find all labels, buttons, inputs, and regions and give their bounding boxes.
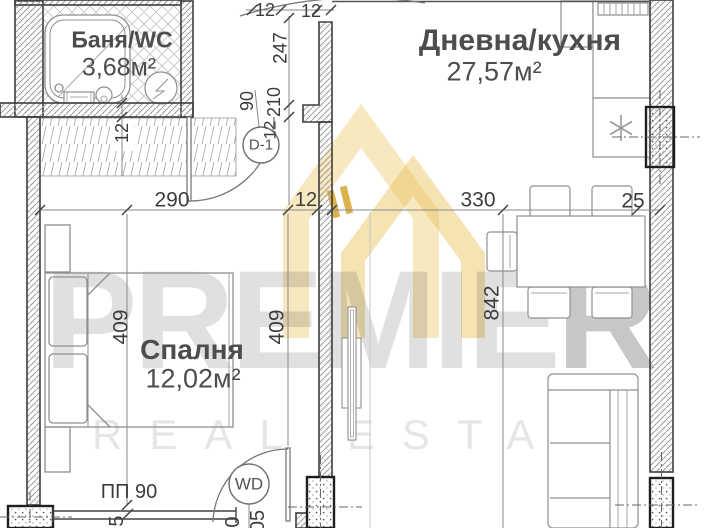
room-name-bedroom: Спалня xyxy=(140,336,244,364)
wall-bathroom-left xyxy=(15,1,43,117)
dim-top-wall-a: 12 xyxy=(255,1,275,19)
room-area-bathroom: 3,68м² xyxy=(82,56,156,81)
wall-left xyxy=(27,117,40,505)
wall-bathroom-top xyxy=(15,0,181,5)
dim-edge-fragment-right: 05 xyxy=(248,510,268,528)
sofa xyxy=(548,374,638,528)
room-name-living: Дневна/кухня xyxy=(419,26,621,56)
sink-drainer xyxy=(598,3,648,15)
pillow-1 xyxy=(49,277,87,346)
window-bedroom xyxy=(53,507,236,523)
pillow-2 xyxy=(49,354,87,423)
dim-right-wall-thickness: 25 xyxy=(621,191,644,212)
closet xyxy=(40,118,236,176)
dim-bedroom-depth-left: 409 xyxy=(111,309,132,344)
dim-partition-thickness: 12 xyxy=(295,190,317,210)
wall-partition xyxy=(319,122,332,477)
chair xyxy=(528,287,570,318)
chair xyxy=(592,287,632,318)
door-tag: D-1 xyxy=(249,138,273,153)
dim-closet-wall: 12 xyxy=(113,123,131,143)
wall-bathroom-bottom xyxy=(0,103,193,117)
nightstand xyxy=(45,427,70,472)
wall-bottom-stub xyxy=(296,513,307,528)
toilet xyxy=(96,87,112,103)
room-area-bedroom: 12,02м² xyxy=(145,366,240,393)
wall-entry-stub xyxy=(303,22,332,122)
chair xyxy=(530,186,570,217)
washbasin xyxy=(64,92,94,103)
doors xyxy=(187,0,425,522)
chair xyxy=(487,232,517,271)
wall-bathroom-right xyxy=(181,1,193,117)
dim-bedroom-width: 290 xyxy=(154,190,189,211)
floor-plan: PREMIE R REAL ESTATE xyxy=(0,0,709,528)
dining-table xyxy=(517,216,645,287)
dim-hall-depth: 247 xyxy=(272,32,291,64)
tv-unit xyxy=(342,307,361,440)
dim-top-wall-b: 12 xyxy=(301,2,321,20)
dim-edge-fragment-left: 5 xyxy=(107,515,127,526)
parapet-label: ПП 90 xyxy=(101,482,158,502)
dim-bedroom-depth-right: 409 xyxy=(267,309,288,344)
dim-door-height: 210 xyxy=(265,87,283,117)
window-door-tag: WD xyxy=(235,476,263,493)
dim-edge-fragment-mid: 0 xyxy=(223,516,243,527)
dresser xyxy=(45,225,70,272)
dim-door-width: 90 xyxy=(238,91,256,111)
room-name-bathroom: Баня/WC xyxy=(71,29,172,52)
wall-right xyxy=(650,0,673,472)
dim-living-width: 330 xyxy=(460,190,495,211)
balcony-door-leaf xyxy=(286,448,290,521)
dim-living-depth: 842 xyxy=(482,285,503,320)
room-area-living: 27,57м² xyxy=(446,59,541,86)
